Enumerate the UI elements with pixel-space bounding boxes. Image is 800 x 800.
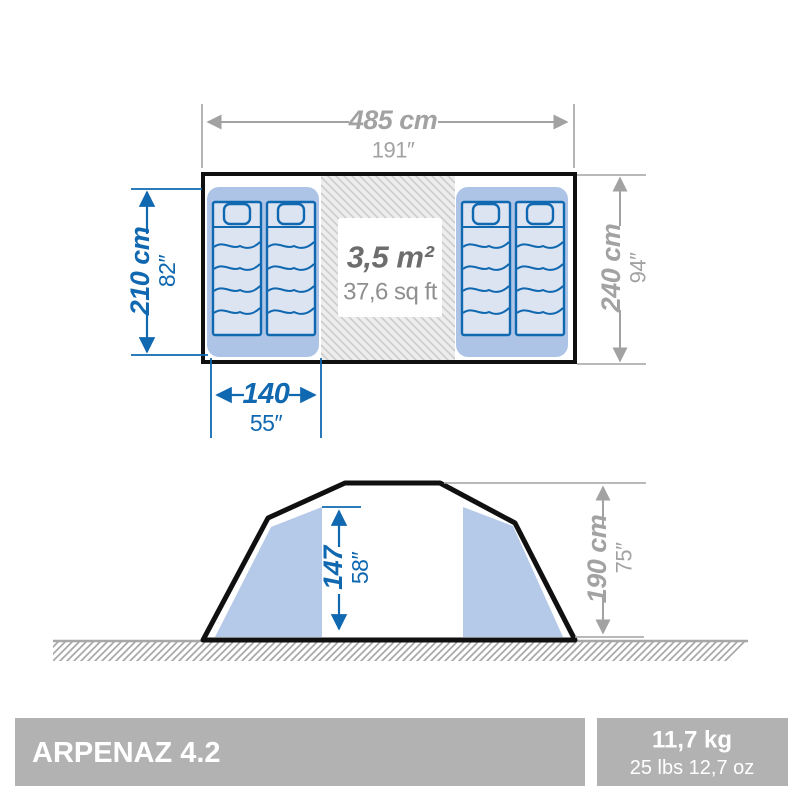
depth-cm-label: 240 cm (596, 224, 626, 314)
width-dimension: 485 cm 191″ (202, 104, 574, 168)
width-inch-label: 191″ (372, 138, 415, 163)
mattress-icon (267, 202, 315, 335)
bedroom-depth-cm-label: 210 cm (125, 227, 155, 317)
bed-width-inch-label: 55″ (250, 410, 283, 436)
tent-panel-right (463, 507, 563, 637)
area-imperial-label: 37,6 sq ft (343, 279, 438, 306)
exterior-height-inch-label: 75″ (612, 542, 637, 573)
footer-bar: ARPENAZ 4.2 11,7 kg 25 lbs 12,7 oz (15, 718, 788, 786)
bed-width-dimension: 140 55″ (211, 358, 321, 438)
bedroom-depth-inch-label: 82″ (154, 255, 180, 288)
area-metric-label: 3,5 m² (347, 240, 435, 275)
bedroom-depth-dimension: 210 cm 82″ (125, 189, 208, 355)
interior-height-cm-label: 147 (318, 544, 348, 590)
bed-width-cm-label: 140 (243, 378, 290, 410)
weight-kg-label: 11,7 kg (652, 727, 732, 754)
floor-plan-view: 485 cm 191″ 3,5 m² 37,6 sq ft 240 cm 94″ (125, 104, 651, 438)
mattress-icon (213, 202, 261, 335)
mattress-icon (462, 202, 510, 335)
model-name-label: ARPENAZ 4.2 (32, 737, 221, 769)
diagram-canvas: 485 cm 191″ 3,5 m² 37,6 sq ft 240 cm 94″ (0, 0, 800, 800)
weight-lbs-label: 25 lbs 12,7 oz (630, 757, 755, 779)
depth-dimension: 240 cm 94″ (577, 175, 651, 364)
ground-hatch (53, 642, 748, 661)
depth-inch-label: 94″ (626, 252, 651, 283)
width-cm-label: 485 cm (348, 105, 438, 135)
mattress-icon (516, 202, 564, 335)
exterior-height-cm-label: 190 cm (582, 515, 612, 604)
side-view: 147 58″ 190 cm 75″ (53, 483, 748, 661)
tent-dimension-diagram: 485 cm 191″ 3,5 m² 37,6 sq ft 240 cm 94″ (0, 0, 800, 800)
interior-height-inch-label: 58″ (347, 552, 373, 585)
living-area-label: 3,5 m² 37,6 sq ft (338, 218, 442, 317)
